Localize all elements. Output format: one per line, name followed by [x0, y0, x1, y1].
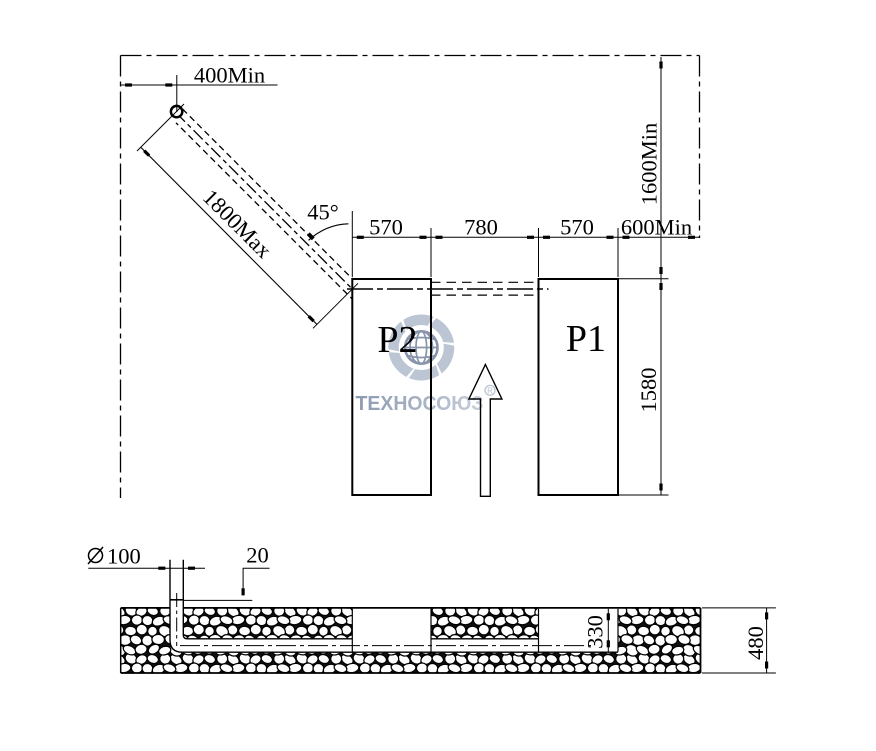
svg-text:480: 480	[743, 626, 768, 660]
svg-text:400Min: 400Min	[194, 63, 265, 88]
svg-text:45°: 45°	[307, 200, 339, 225]
svg-text:1600Min: 1600Min	[637, 123, 662, 206]
svg-text:P2: P2	[377, 319, 417, 361]
svg-text:570: 570	[560, 215, 594, 240]
svg-text:570: 570	[369, 215, 403, 240]
svg-text:P1: P1	[566, 318, 606, 360]
svg-text:20: 20	[246, 543, 269, 568]
svg-text:1580: 1580	[636, 368, 661, 413]
svg-text:R: R	[487, 386, 493, 395]
svg-text:330: 330	[583, 615, 608, 649]
svg-text:600Min: 600Min	[621, 215, 692, 240]
svg-text:ТЕХНОСОЮЗ: ТЕХНОСОЮЗ	[356, 392, 484, 415]
svg-text:780: 780	[464, 215, 498, 240]
svg-text:100: 100	[107, 544, 141, 569]
